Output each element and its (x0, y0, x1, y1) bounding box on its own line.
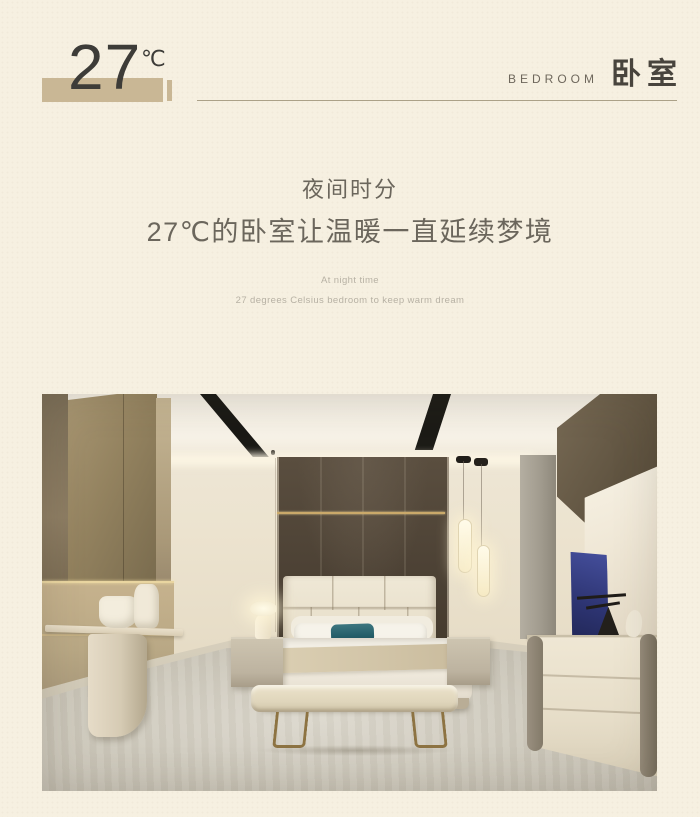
page: 27 ℃ BEDROOM 卧室 夜间时分 27℃的卧室让温暖一直延续梦境 At … (0, 0, 700, 817)
intro-copy: 夜间时分 27℃的卧室让温暖一直延续梦境 At night time 27 de… (0, 172, 700, 306)
pendant-wire-left (463, 461, 464, 520)
bench-shadow (257, 745, 454, 755)
console-pedestal (88, 634, 147, 737)
bed-bench-cushion (251, 685, 458, 713)
section-header: BEDROOM 卧室 (508, 58, 677, 91)
table-lamp-dome (250, 601, 277, 616)
console-vase-1 (99, 596, 137, 629)
section-label-zh: 卧室 (611, 58, 683, 91)
headboard-wall-gold-trim (277, 512, 445, 514)
bedroom-photo (42, 394, 657, 791)
nightstand-right (447, 637, 490, 684)
intro-subtitle-en2: 27 degrees Celsius bedroom to keep warm … (0, 295, 700, 306)
pendant-light-right (477, 545, 491, 597)
wardrobe-side (156, 398, 171, 604)
temperature-unit: ℃ (141, 46, 166, 72)
intro-title-line1: 夜间时分 (0, 172, 700, 204)
console-vase-2 (134, 584, 159, 628)
pendant-light-left (458, 519, 472, 573)
dresser-side-pillar-left (527, 636, 543, 751)
gray-pillar (520, 455, 556, 640)
section-label-en: BEDROOM (508, 72, 598, 91)
wardrobe-front (68, 394, 157, 593)
header-divider-line (197, 100, 677, 101)
temperature-value: 27 (68, 34, 141, 101)
dresser-side-pillar-right (640, 634, 657, 777)
temperature-bar-tick (167, 80, 172, 101)
intro-title-line2: 27℃的卧室让温暖一直延续梦境 (0, 210, 700, 249)
bench-leg-left (273, 712, 310, 748)
pendant-wire-right (481, 464, 482, 546)
temperature-display: 27 ℃ (42, 40, 252, 116)
table-lamp-base (255, 615, 271, 640)
intro-subtitle-en1: At night time (0, 275, 700, 286)
nightstand-left (231, 637, 283, 687)
bench-leg-right (411, 712, 448, 748)
gold-trim-upper (42, 581, 174, 583)
